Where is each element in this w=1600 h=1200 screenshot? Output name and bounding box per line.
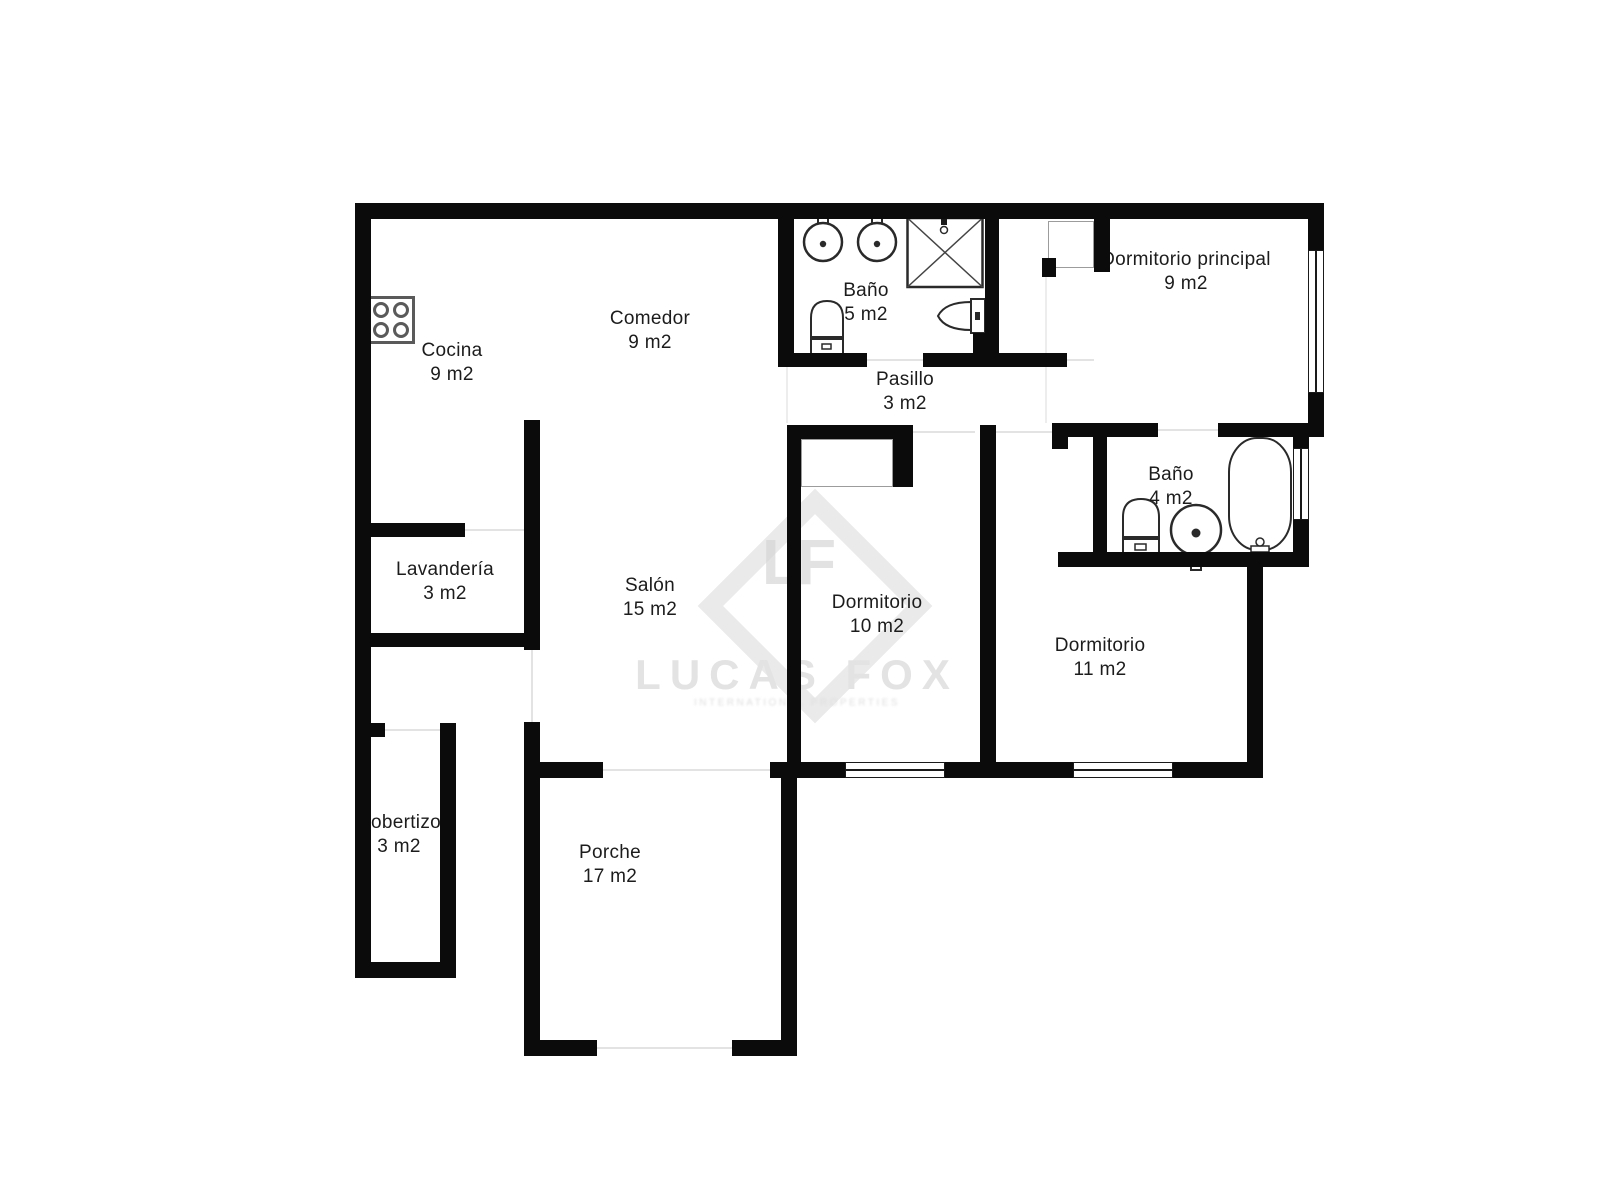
room-name: Lavandería xyxy=(396,558,494,582)
door-master-bath4 xyxy=(1158,423,1218,437)
room-label-bano-4: Baño 4 m2 xyxy=(1148,463,1194,511)
room-label-dormitorio-10: Dormitorio 10 m2 xyxy=(832,591,923,639)
sink-icon xyxy=(801,217,845,263)
room-name: Dormitorio xyxy=(832,591,923,615)
wall-bath-right xyxy=(1293,520,1309,567)
wall-south xyxy=(1173,762,1263,778)
room-label-pasillo: Pasillo 3 m2 xyxy=(876,368,934,416)
wall-bath5-corner-block xyxy=(973,333,999,353)
wardrobe-outline xyxy=(801,439,893,487)
toilet-icon xyxy=(809,299,845,356)
room-label-salon: Salón 15 m2 xyxy=(623,574,677,622)
wall-exterior-right xyxy=(1308,219,1324,250)
door-livingroom-porch xyxy=(603,762,770,778)
bathtub-icon xyxy=(1227,436,1293,556)
wall-corridor-stub xyxy=(1052,437,1068,449)
room-label-comedor: Comedor 9 m2 xyxy=(610,307,690,355)
room-label-porche: Porche 17 m2 xyxy=(579,841,641,889)
room-name: Dormitorio principal xyxy=(1101,248,1271,272)
room-name: Baño xyxy=(843,279,889,303)
wall-porch-left xyxy=(524,778,540,1056)
room-area: 9 m2 xyxy=(610,331,690,355)
room-name: Porche xyxy=(579,841,641,865)
room-area: 15 m2 xyxy=(623,598,677,622)
wall-laundry-top xyxy=(355,523,465,537)
wall-livingroom-left xyxy=(524,722,540,762)
wall-porch-bottom xyxy=(524,1040,597,1056)
room-label-cocina: Cocina 9 m2 xyxy=(422,339,483,387)
room-label-lavanderia: Lavandería 3 m2 xyxy=(396,558,494,606)
wall-bath5-left xyxy=(778,219,794,353)
wall-exterior-left xyxy=(355,219,371,978)
wall-vestibule-stub xyxy=(1042,258,1056,277)
door-vestibule xyxy=(1067,353,1094,367)
door-bath5 xyxy=(867,353,923,367)
wall-bath5-bottom xyxy=(778,353,867,367)
wall-shed-top-stub xyxy=(371,723,385,737)
window-bedroom11 xyxy=(1073,762,1173,778)
wall-livingroom-left xyxy=(524,420,540,650)
room-name: Comedor xyxy=(610,307,690,331)
room-area: 5 m2 xyxy=(843,303,889,327)
wall-south xyxy=(770,762,845,778)
room-area: 9 m2 xyxy=(422,363,483,387)
wall-bedroom11-top xyxy=(1058,552,1293,567)
open-boundary-line xyxy=(1045,277,1047,423)
toilet-icon xyxy=(933,297,987,335)
stove-icon xyxy=(367,296,415,344)
room-name: Pasillo xyxy=(876,368,934,392)
window-bath4 xyxy=(1293,448,1309,520)
room-name: Dormitorio xyxy=(1055,634,1146,658)
room-area: 4 m2 xyxy=(1148,487,1194,511)
door-laundry xyxy=(465,523,524,537)
room-name: Cocina xyxy=(422,339,483,363)
window-bedroom10 xyxy=(845,762,945,778)
room-label-dormitorio-11: Dormitorio 11 m2 xyxy=(1055,634,1146,682)
wall-porch-bottom xyxy=(732,1040,797,1056)
door-bedroom10 xyxy=(913,425,975,439)
wall-shed-bottom xyxy=(355,962,456,978)
room-area: 10 m2 xyxy=(832,615,923,639)
wall-shed-right xyxy=(440,723,456,978)
floor-plan: LF LUCAS FOX INTERNATIONAL PROPERTIES xyxy=(0,0,1600,1200)
wall-hall-south xyxy=(1218,423,1324,437)
wall-bedroom11-right xyxy=(1247,567,1263,778)
wall-hall-south xyxy=(1052,423,1158,437)
room-area: 17 m2 xyxy=(579,865,641,889)
window-master-bedroom xyxy=(1308,250,1324,393)
wall-closet-stub xyxy=(893,425,913,487)
room-label-bano-5: Baño 5 m2 xyxy=(843,279,889,327)
door-livingroom-side xyxy=(524,650,540,722)
wall-laundry-bottom xyxy=(355,633,540,647)
door-shed xyxy=(385,723,440,737)
door-porch-entry xyxy=(597,1040,732,1056)
wall-bath5-bottom xyxy=(923,353,1067,367)
wall-exterior-top xyxy=(355,203,1324,219)
sink-icon xyxy=(855,217,899,263)
wall-master-left-stub xyxy=(1094,219,1110,272)
wall-south xyxy=(524,762,603,778)
room-name: Baño xyxy=(1148,463,1194,487)
wall-south xyxy=(945,762,1073,778)
room-name: Salón xyxy=(623,574,677,598)
open-boundary-line xyxy=(786,367,788,423)
shower-icon xyxy=(906,211,984,289)
wall-porch-right xyxy=(781,778,797,1056)
room-label-dormitorio-principal: Dormitorio principal 9 m2 xyxy=(1101,248,1271,296)
wall-bedroom10-left xyxy=(787,439,801,762)
door-corridor-bedroom11 xyxy=(996,425,1052,439)
room-area: 11 m2 xyxy=(1055,658,1146,682)
wall-bath4-divider xyxy=(1093,437,1107,557)
room-area: 9 m2 xyxy=(1101,272,1271,296)
room-area: 3 m2 xyxy=(876,392,934,416)
room-area: 3 m2 xyxy=(396,582,494,606)
wall-bedrooms-divider xyxy=(980,425,996,762)
